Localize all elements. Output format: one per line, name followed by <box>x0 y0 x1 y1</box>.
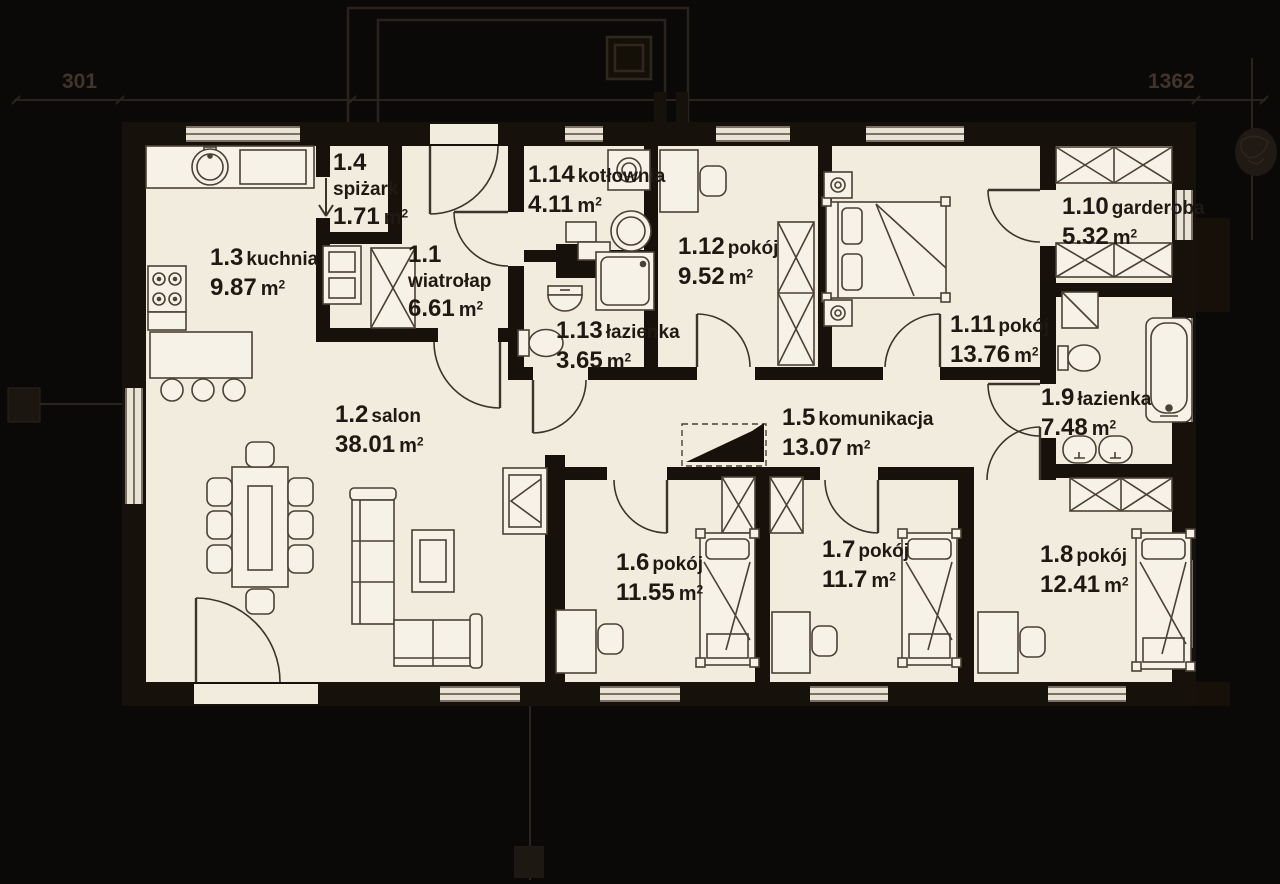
coffee-table <box>412 530 454 592</box>
wardrobe-room7 <box>770 477 803 533</box>
room-label-kuchnia: 1.3kuchnia 9.87m2 <box>210 243 318 303</box>
plant-icon <box>1235 128 1277 176</box>
terrace-opening <box>194 684 318 704</box>
chimney-icon <box>607 37 651 79</box>
room-label-pokoj6: 1.6pokój 11.55m2 <box>616 548 703 608</box>
kitchen-counter <box>146 146 314 188</box>
room-label-pokoj12: 1.12pokój 9.52m2 <box>678 232 778 292</box>
kitchen-island <box>150 332 252 378</box>
bar-stools <box>161 379 245 401</box>
tv-cabinet <box>503 468 547 534</box>
entrance-opening <box>430 124 498 144</box>
wardrobe-room12 <box>778 222 814 365</box>
room-label-salon: 1.2salon 38.01m2 <box>335 400 424 460</box>
room-label-lazienka9: 1.9łazienka 7.48m2 <box>1041 383 1151 443</box>
room-label-wiatrolap: 1.1 wiatrołap 6.61m2 <box>408 240 491 324</box>
bed-room11 <box>822 197 950 302</box>
bathtub <box>1146 318 1192 422</box>
bed-room6 <box>696 529 759 667</box>
room-label-kotlownia: 1.14kotłownia 4.11m2 <box>528 160 665 220</box>
wardrobe-room8 <box>1070 478 1172 511</box>
room-label-lazienka13: 1.13łazienka 3.65m2 <box>556 316 680 376</box>
svg-text:301: 301 <box>62 70 97 93</box>
svg-text:1362: 1362 <box>1148 70 1195 93</box>
shower <box>596 252 654 310</box>
room-label-pokoj11: 1.11pokój 13.76m2 <box>950 310 1049 370</box>
washbasin-small-bath <box>548 286 582 311</box>
floor-plan-page: 301 1362 1.3kuchnia 9.87m2 1.4 spiżark 1… <box>0 0 1280 884</box>
washing-machine-bath9 <box>1062 292 1098 328</box>
dining-table <box>232 467 288 587</box>
room-label-pokoj8: 1.8pokój 12.41m2 <box>1040 540 1129 600</box>
wardrobe-room6 <box>722 477 755 533</box>
fridge <box>323 246 361 304</box>
kitchen-sink <box>192 149 228 185</box>
room-label-komunikacja: 1.5komunikacja 13.07m2 <box>782 403 933 463</box>
room-label-spizarka: 1.4 spiżark 1.71m2 <box>333 148 408 232</box>
room-label-pokoj7: 1.7pokój 11.7m2 <box>822 535 909 595</box>
room-label-garderoba: 1.10garderoba 5.32m2 <box>1062 192 1205 252</box>
kitchen-stove <box>148 266 186 330</box>
bed-room8 <box>1132 529 1195 671</box>
toilet-bath9 <box>1058 345 1100 371</box>
